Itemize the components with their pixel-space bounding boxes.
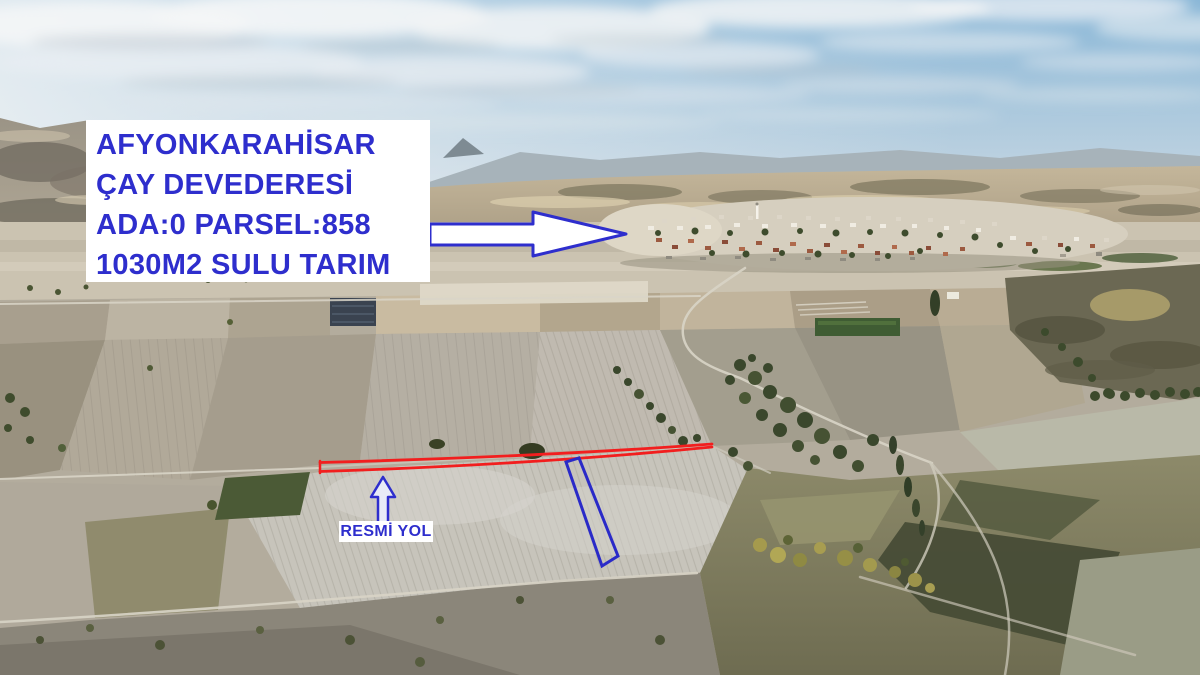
info-line-parcel: ADA:0 PARSEL:858 xyxy=(96,205,430,245)
barn-building xyxy=(947,292,959,299)
info-line-district: ÇAY DEVEDERESİ xyxy=(96,165,430,205)
road-label: RESMİ YOL xyxy=(339,521,433,542)
landscape-photo xyxy=(0,0,1200,675)
foreground-fields xyxy=(0,264,1200,675)
green-crop-field xyxy=(815,318,900,336)
info-line-province: AFYONKARAHİSAR xyxy=(96,125,430,165)
green-field-corner xyxy=(215,472,310,520)
info-line-area: 1030M2 SULU TARIM xyxy=(96,245,430,285)
aerial-photo: AFYONKARAHİSAR ÇAY DEVEDERESİ ADA:0 PARS… xyxy=(0,0,1200,675)
parcel-info-box: AFYONKARAHİSAR ÇAY DEVEDERESİ ADA:0 PARS… xyxy=(86,120,430,282)
village xyxy=(598,197,1128,273)
